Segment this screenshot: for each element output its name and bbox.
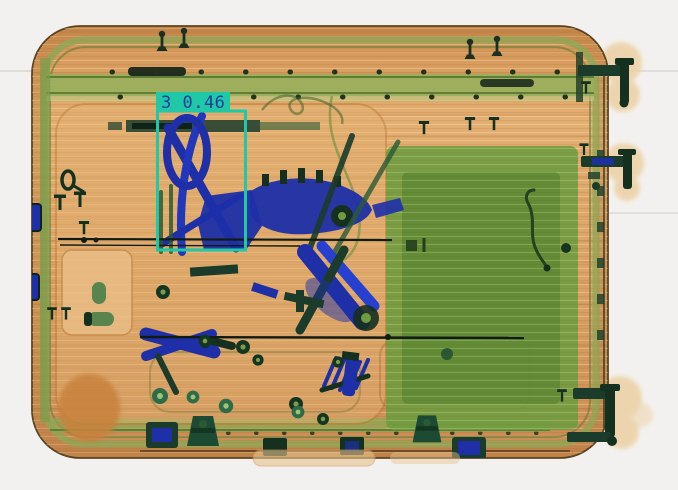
organic-fabric-region — [386, 117, 578, 430]
detection-label-text: 3 0.46 — [161, 93, 225, 113]
small-square-item — [406, 240, 417, 251]
xray-scan-view: 3 0.46 — [0, 0, 678, 490]
xray-image: 3 0.46 — [0, 0, 678, 490]
handle-bar-right — [480, 79, 534, 87]
suitcase — [22, 26, 636, 466]
left-green-band — [40, 58, 50, 422]
bottom-bumper-2 — [390, 452, 460, 464]
dense-blob — [58, 374, 120, 442]
bottom-bumper — [253, 450, 375, 466]
